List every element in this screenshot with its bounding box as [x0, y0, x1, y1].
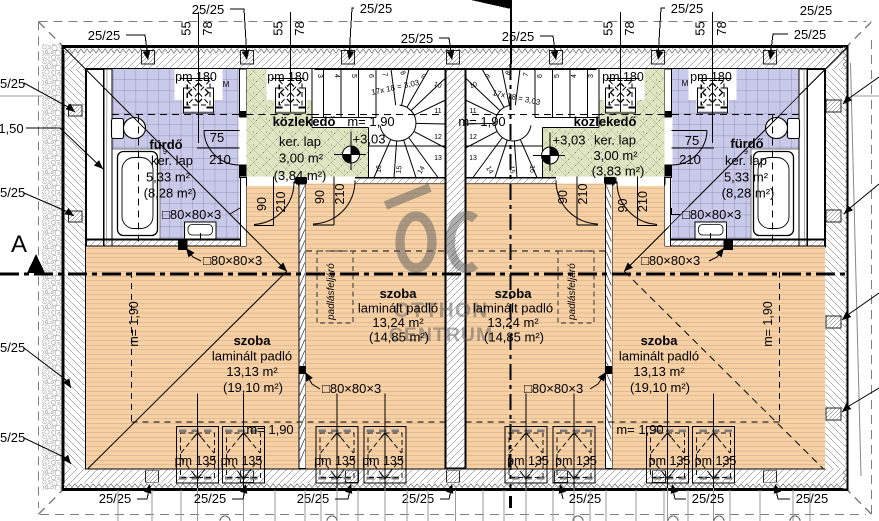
svg-text:210: 210 — [333, 184, 347, 205]
svg-text:szoba: szoba — [641, 333, 679, 348]
svg-text:ker. lap: ker. lap — [594, 133, 636, 148]
svg-text:55: 55 — [179, 21, 194, 35]
svg-text:55: 55 — [693, 21, 708, 35]
svg-text:(3,84 m²): (3,84 m²) — [274, 168, 327, 183]
svg-text:25/25: 25/25 — [671, 1, 704, 16]
svg-text:25/25: 25/25 — [194, 491, 227, 506]
svg-text:3: 3 — [316, 74, 323, 78]
svg-text:A: A — [11, 231, 27, 258]
svg-text:25/25: 25/25 — [297, 491, 330, 506]
svg-text:5: 5 — [554, 74, 561, 78]
svg-text:pm 180: pm 180 — [175, 70, 217, 84]
svg-text:ker. lap: ker. lap — [279, 134, 321, 149]
svg-text:(8,28 m²): (8,28 m²) — [722, 186, 775, 201]
svg-text:3: 3 — [588, 74, 595, 78]
svg-text:55: 55 — [271, 21, 286, 35]
svg-text:55: 55 — [601, 21, 616, 35]
svg-text:90: 90 — [616, 199, 630, 213]
svg-text:padlásfeljáró: padlásfeljáró — [567, 263, 578, 321]
svg-text:78: 78 — [622, 21, 637, 35]
svg-text:m= 1,90: m= 1,90 — [127, 301, 141, 347]
svg-text:pm 135: pm 135 — [695, 454, 737, 468]
svg-text:25/25: 25/25 — [569, 491, 602, 506]
svg-text:pm 135: pm 135 — [507, 454, 549, 468]
svg-text:(19,10 m²): (19,10 m²) — [630, 380, 690, 395]
svg-text:15: 15 — [395, 165, 403, 174]
svg-text:78: 78 — [714, 21, 729, 35]
svg-text:13,13 m²: 13,13 m² — [226, 364, 278, 379]
svg-text:pm 135: pm 135 — [314, 454, 356, 468]
svg-text:25/25: 25/25 — [192, 2, 225, 17]
svg-text:210: 210 — [576, 184, 590, 205]
svg-text:75: 75 — [210, 130, 224, 145]
svg-text:pm 135: pm 135 — [221, 454, 263, 468]
svg-text:közlekedő: közlekedő — [574, 114, 637, 129]
svg-text:□80×80×3: □80×80×3 — [682, 207, 741, 222]
svg-text:90: 90 — [255, 197, 269, 211]
svg-text:25/25: 25/25 — [794, 27, 827, 42]
svg-text:16: 16 — [528, 165, 535, 173]
svg-text:11: 11 — [434, 108, 441, 115]
svg-text:(3,83 m²): (3,83 m²) — [592, 164, 645, 179]
svg-text:25/25: 25/25 — [0, 185, 25, 200]
svg-text:11: 11 — [469, 108, 476, 115]
svg-text:25/25: 25/25 — [360, 1, 393, 16]
svg-text:12: 12 — [434, 134, 442, 141]
svg-text:laminált padló: laminált padló — [212, 349, 292, 364]
svg-text:laminált padló: laminált padló — [619, 349, 699, 364]
svg-text:1,50: 1,50 — [0, 121, 24, 136]
svg-text:pm 135: pm 135 — [362, 454, 404, 468]
svg-text:13,24 m²: 13,24 m² — [372, 315, 424, 330]
svg-text:25/25: 25/25 — [502, 29, 535, 44]
svg-text:□80×80×3: □80×80×3 — [524, 381, 583, 396]
svg-text:25/25: 25/25 — [401, 31, 434, 46]
svg-text:13: 13 — [469, 155, 477, 162]
svg-text:M: M — [223, 80, 230, 89]
svg-text:m= 1,90: m= 1,90 — [246, 422, 293, 437]
svg-text:pm 180: pm 180 — [690, 70, 732, 84]
svg-text:16: 16 — [376, 165, 383, 173]
svg-text:pm 180: pm 180 — [267, 70, 309, 84]
svg-text:25/25: 25/25 — [0, 340, 25, 355]
svg-text:25/25: 25/25 — [0, 76, 25, 91]
svg-text:közlekedő: közlekedő — [273, 114, 336, 129]
svg-text:szoba: szoba — [380, 286, 418, 301]
svg-text:25/25: 25/25 — [99, 491, 132, 506]
svg-text:25/25: 25/25 — [88, 28, 121, 43]
svg-text:(14,85 m²): (14,85 m²) — [369, 330, 429, 345]
svg-text:laminált padló: laminált padló — [358, 301, 438, 316]
svg-text:M: M — [682, 79, 689, 88]
svg-text:90: 90 — [556, 190, 570, 204]
svg-text:210: 210 — [636, 191, 650, 212]
svg-text:25/25: 25/25 — [796, 491, 829, 506]
svg-text:12: 12 — [469, 134, 477, 141]
svg-text:5,33 m²: 5,33 m² — [724, 170, 769, 185]
svg-text:pm 135: pm 135 — [555, 454, 597, 468]
svg-text:25/25: 25/25 — [800, 3, 833, 18]
svg-text:75: 75 — [685, 133, 699, 148]
svg-text:25/25: 25/25 — [0, 430, 25, 445]
svg-text:m= 1,90: m= 1,90 — [761, 301, 775, 347]
svg-text:4: 4 — [571, 74, 578, 78]
svg-text:padlásfeljáró: padlásfeljáró — [326, 263, 337, 321]
svg-text:pm 135: pm 135 — [649, 454, 691, 468]
svg-text:fürdő: fürdő — [149, 137, 182, 152]
svg-text:4: 4 — [333, 74, 340, 78]
svg-text:+3,03: +3,03 — [353, 132, 386, 147]
svg-text:13: 13 — [434, 155, 442, 162]
svg-text:5,33 m²: 5,33 m² — [146, 170, 191, 185]
svg-text:25/25: 25/25 — [692, 491, 725, 506]
svg-text:13,24 m²: 13,24 m² — [487, 315, 539, 330]
svg-text:210: 210 — [679, 152, 701, 167]
svg-text:(8,28 m²): (8,28 m²) — [144, 186, 197, 201]
svg-text:□80×80×3: □80×80×3 — [203, 253, 262, 268]
svg-text:fürdő: fürdő — [730, 136, 763, 151]
svg-text:pm 135: pm 135 — [175, 454, 217, 468]
svg-text:+3,03: +3,03 — [553, 133, 586, 148]
svg-text:5: 5 — [350, 74, 357, 78]
svg-text:3,00 m²: 3,00 m² — [593, 148, 638, 163]
svg-text:laminált padló: laminált padló — [473, 301, 553, 316]
svg-text:6: 6 — [367, 74, 374, 78]
svg-text:210: 210 — [274, 192, 288, 213]
svg-text:szoba: szoba — [495, 286, 533, 301]
svg-text:ker. lap: ker. lap — [725, 153, 767, 168]
svg-text:15: 15 — [507, 165, 515, 174]
svg-text:□80×80×3: □80×80×3 — [322, 381, 381, 396]
svg-text:90: 90 — [313, 190, 327, 204]
svg-text:□80×80×3: □80×80×3 — [641, 253, 700, 268]
svg-text:(19,10 m²): (19,10 m²) — [223, 380, 283, 395]
svg-text:ker. lap: ker. lap — [151, 153, 193, 168]
svg-text:78: 78 — [200, 21, 215, 35]
svg-text:□80×80×3: □80×80×3 — [162, 207, 221, 222]
svg-text:6: 6 — [537, 74, 544, 78]
svg-text:pm 180: pm 180 — [602, 70, 644, 84]
svg-text:13,13 m²: 13,13 m² — [633, 364, 685, 379]
svg-text:m= 1,90: m= 1,90 — [616, 422, 663, 437]
svg-text:(14,85 m²): (14,85 m²) — [484, 330, 544, 345]
svg-text:m= 1,90: m= 1,90 — [347, 114, 394, 129]
svg-text:m= 1,90: m= 1,90 — [458, 114, 505, 129]
svg-text:78: 78 — [292, 21, 307, 35]
svg-text:210: 210 — [209, 152, 231, 167]
svg-text:3,00 m²: 3,00 m² — [279, 151, 324, 166]
svg-text:szoba: szoba — [234, 333, 272, 348]
